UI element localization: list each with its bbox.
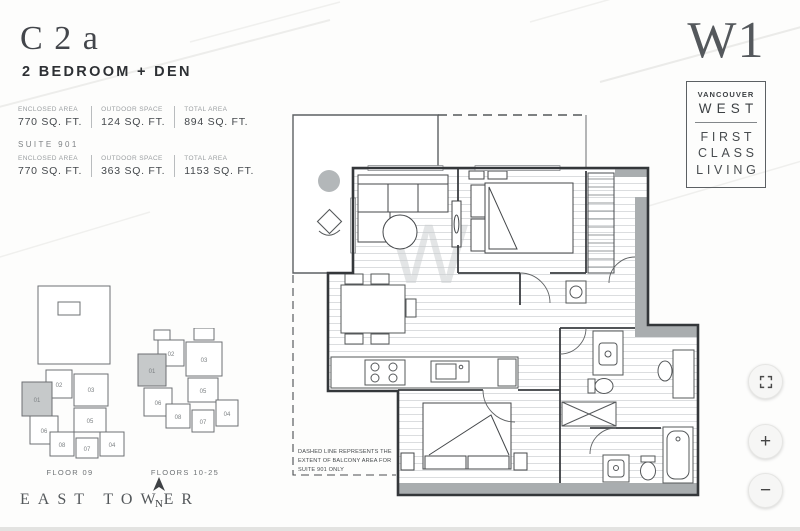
svg-text:03: 03 <box>88 388 95 394</box>
stat-outdoor-space: OUTDOOR SPACE 124 SQ. FT. <box>91 106 174 128</box>
svg-text:01: 01 <box>34 398 41 404</box>
fullscreen-button[interactable] <box>748 364 783 399</box>
area-stats: ENCLOSED AREA 770 SQ. FT. OUTDOOR SPACE … <box>18 106 263 177</box>
stats-row-base: ENCLOSED AREA 770 SQ. FT. OUTDOOR SPACE … <box>18 106 263 128</box>
plan-type-subtitle: 2 BEDROOM + DEN <box>22 64 192 80</box>
floor-plan: W <box>283 103 707 504</box>
svg-text:03: 03 <box>201 358 208 364</box>
svg-text:01: 01 <box>149 369 156 375</box>
washer-dryer <box>566 281 586 303</box>
svg-text:04: 04 <box>109 443 116 449</box>
stove <box>365 360 405 385</box>
stat-enclosed-area-suite: ENCLOSED AREA 770 SQ. FT. <box>18 155 91 177</box>
keyplan-caption-floors-10-25: FLOORS 10-25 <box>130 468 240 477</box>
keyplan-caption-floor-09: FLOOR 09 <box>12 468 128 477</box>
page-title: C2a <box>20 20 109 58</box>
page-bottom-edge <box>0 527 800 531</box>
svg-text:07: 07 <box>200 420 207 426</box>
plus-icon: + <box>760 432 771 451</box>
svg-text:07: 07 <box>84 447 91 453</box>
svg-text:05: 05 <box>200 389 207 395</box>
svg-text:02: 02 <box>168 352 175 358</box>
zoom-in-button[interactable]: + <box>748 424 783 459</box>
svg-text:08: 08 <box>175 415 182 421</box>
keyplan-floors-10-25: 02 03 01 05 06 08 07 04 <box>136 328 240 460</box>
stat-outdoor-space-suite: OUTDOOR SPACE 363 SQ. FT. <box>91 155 174 177</box>
master-closet <box>588 173 614 273</box>
balcony-extension-dashed <box>438 115 586 167</box>
balcony-table <box>318 170 340 192</box>
svg-text:02: 02 <box>56 383 63 389</box>
stat-total-area-suite: TOTAL AREA 1153 SQ. FT. <box>174 155 263 177</box>
dining-table <box>341 285 405 333</box>
coffee-table <box>383 215 417 249</box>
den-desk <box>673 350 694 398</box>
fridge <box>498 359 516 386</box>
svg-text:SUITE 901 ONLY: SUITE 901 ONLY <box>298 467 344 473</box>
suite-heading: SUITE 901 <box>18 140 263 149</box>
svg-text:04: 04 <box>224 412 231 418</box>
zoom-out-button[interactable]: − <box>748 473 783 508</box>
svg-text:05: 05 <box>87 419 94 425</box>
floorplan-page: C2a 2 BEDROOM + DEN ENCLOSED AREA 770 SQ… <box>0 0 800 531</box>
toilet <box>588 379 595 393</box>
svg-text:06: 06 <box>41 429 48 435</box>
kitchen-counter <box>331 357 518 388</box>
svg-text:DASHED LINE REPRESENTS THE: DASHED LINE REPRESENTS THE <box>298 449 392 455</box>
north-arrow: N <box>148 477 170 510</box>
w1-logo: W1 <box>678 12 774 69</box>
tower-label: EAST TOWER <box>20 491 200 509</box>
master-bedroom-furniture <box>469 171 573 253</box>
stats-row-suite: ENCLOSED AREA 770 SQ. FT. OUTDOOR SPACE … <box>18 155 263 177</box>
north-label: N <box>148 498 170 510</box>
stat-total-area: TOTAL AREA 894 SQ. FT. <box>174 106 257 128</box>
plan-note: DASHED LINE REPRESENTS THE EXTENT OF BAL… <box>298 449 392 473</box>
svg-text:08: 08 <box>59 443 66 449</box>
keyplan-floor-09: 02 03 01 05 06 08 07 04 <box>14 282 130 462</box>
north-arrow-icon <box>152 477 166 492</box>
minus-icon: − <box>760 481 771 500</box>
svg-text:06: 06 <box>155 401 162 407</box>
expand-arrows-icon <box>757 373 775 391</box>
stat-enclosed-area: ENCLOSED AREA 770 SQ. FT. <box>18 106 91 128</box>
keyplans: 02 03 01 05 06 08 07 04 <box>12 280 252 505</box>
svg-text:EXTENT OF BALCONY AREA FOR: EXTENT OF BALCONY AREA FOR <box>298 458 391 464</box>
toilet-2 <box>641 456 655 462</box>
